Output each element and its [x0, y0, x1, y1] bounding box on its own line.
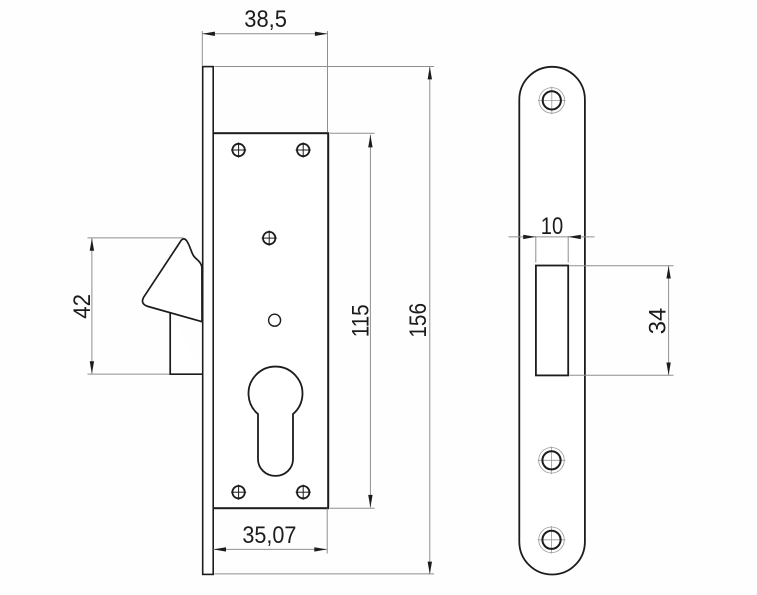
- svg-text:35,07: 35,07: [242, 522, 296, 549]
- svg-text:115: 115: [347, 304, 374, 337]
- svg-text:38,5: 38,5: [244, 6, 287, 33]
- svg-text:34: 34: [644, 308, 671, 335]
- svg-text:156: 156: [405, 303, 432, 338]
- svg-text:10: 10: [541, 213, 563, 240]
- svg-text:42: 42: [69, 294, 96, 319]
